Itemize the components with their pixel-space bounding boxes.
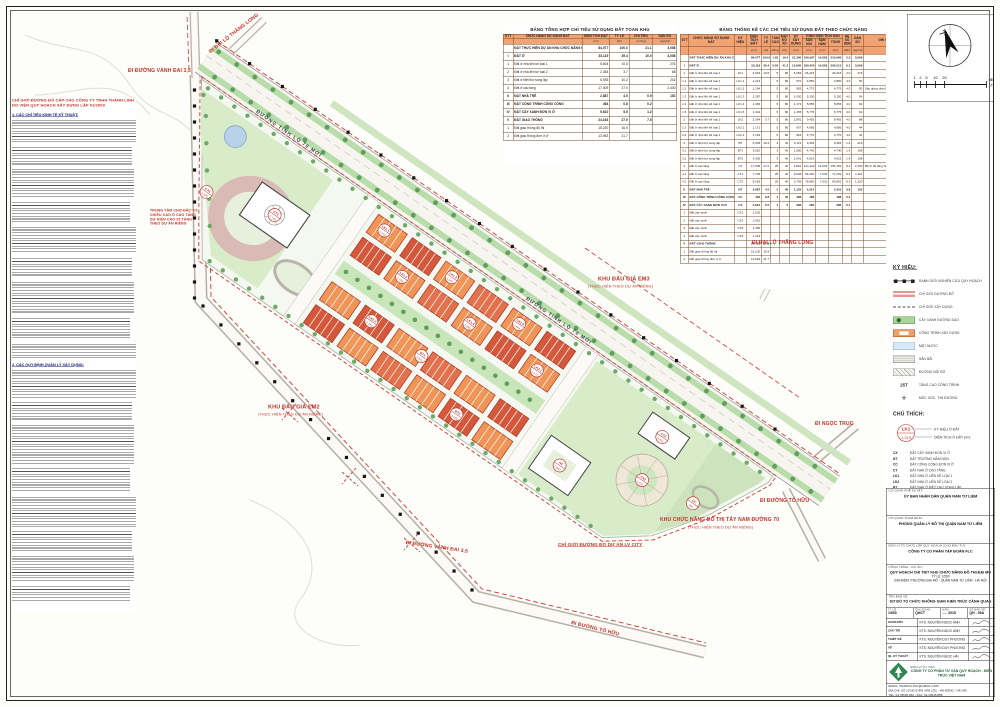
signature-scribble: [969, 653, 995, 660]
stats-row: 3.1Đất ở biệt thự song lậpBT13,5103451,5…: [680, 147, 907, 155]
svg-text:50M: 50M: [989, 77, 993, 82]
meta-cell: SỐ BẢN VẼQH - 05A: [968, 608, 995, 618]
lot-circle-key: LK1 1,213 KÝ HIỆU Ô ĐẤT DIỆN TÍCH Ô ĐẤT …: [893, 420, 993, 446]
red-line-icon: [893, 290, 915, 298]
investor-caption: ĐƠN VỊ TỔ CHỨC LẬP QUY HOẠCH (CHỦ ĐẦU TƯ…: [889, 545, 993, 548]
signature-row: GIÁM ĐỐCKTS. NGUYỄN NGỌC ANH: [887, 619, 995, 628]
legend-item: ĐƯỜNG NỘI BỘ: [893, 366, 993, 379]
summary-row: ĐẤT THỰC HIỆN DỰ ÁN KHU CHỨC NĂNG ĐÔ THỊ…: [503, 44, 677, 52]
legend-title: KÝ HIỆU:: [893, 265, 993, 271]
stats-row: IĐẤT Ở33,11939.43-2541.213,650186,45014,…: [680, 62, 907, 70]
scale-bar: 125102050M1/500: [913, 75, 992, 88]
stats-row: 1.1Đất ở nhà liền kề loại 1LK1.11,213580…: [680, 77, 907, 85]
right-info-column: 125102050M1/500 KÝ HIỆU: RANH GIỚI NGHIÊ…: [886, 12, 995, 698]
svg-text:DIỆN TÍCH Ô ĐẤT (m²): DIỆN TÍCH Ô ĐẤT (m²): [934, 435, 970, 440]
stats-row: IIIĐẤT CÔNG TRÌNH CÔNG CỘNGCC4640.814018…: [680, 194, 907, 202]
legend-label: CÂY XANH ĐƯỜNG DẠO: [919, 318, 959, 322]
svg-text:5: 5: [925, 75, 928, 80]
legend-list: RANH GIỚI NGHIÊN CỨU QUY HOẠCHCHỈ GIỚI Đ…: [893, 275, 993, 405]
meta-cell: GIAI ĐOẠNQHCT: [914, 608, 941, 618]
red-line-note-2: DO VIỆN QUY HOẠCH XÂY DỰNG LẬP 01/2009: [12, 103, 136, 108]
legend-item: 25TTẦNG CAO CÔNG TRÌNH: [893, 379, 993, 392]
label-market-note: TRUNG TÂM CHỢ ĐẦU TƯCHIỀU CAO Ô CAO TẦNG…: [150, 209, 198, 227]
project-caption: CÔNG TRÌNH - DỰ ÁN:: [889, 566, 993, 569]
stats-row: 3Đất ở biệt thự song lậpBT6,93510.23453,…: [680, 139, 907, 147]
label-em2-sub: (THỰC HIỆN THEO DỰ ÁN RIÊNG): [258, 412, 323, 417]
summary-row: 2Đất giao thông đơn vị ở13,96321.7: [503, 132, 677, 140]
svg-text:1,213: 1,213: [901, 435, 912, 440]
consultant-name: CÔNG TY CỔ PHẦN TƯ VẤN QUY HOẠCH - KIẾN …: [911, 669, 993, 678]
stats-row: 1Đất cây xanhCX11,525: [680, 209, 907, 217]
legend-label: ĐƯỜNG NỘI BỘ: [919, 370, 945, 374]
annotation-key-title: CHÚ THÍCH:: [893, 412, 993, 418]
legend-label: CHỈ GIỚI ĐƯỜNG ĐỎ: [919, 292, 954, 296]
legend-label: MỐC GIỚI, TIM ĐƯỜNG: [919, 396, 958, 400]
water-icon: [893, 342, 915, 350]
signature-scribble: [969, 628, 995, 635]
stats-row: 1.3Đất ở nhà liền kề loại 1LK1.31,287580…: [680, 93, 907, 101]
project-name: QUY HOẠCH CHI TIẾT KHU CHỨC NĂNG ĐÔ THỊ …: [889, 570, 993, 575]
land-use-codes: CXĐẤT CÂY XANH ĐƠN VỊ ỞNTĐẤT TRƯỜNG MẦM …: [893, 451, 993, 491]
stats-row: 4Đất ở cao tầngCT17,00927.025406,804141,…: [680, 163, 907, 171]
drawing-meta-row: TỶ LỆ1/500GIAI ĐOẠNQHCTNĂM..... 2015SỐ B…: [886, 608, 995, 619]
summary-row: 1Đất ở nhà liền kề loại 16,60410.5276: [503, 60, 677, 68]
stats-row: 4.2Đất ở cao tầngCT29,26325403,70676,860…: [680, 178, 907, 186]
label-ngoc-truc: ĐI NGỌC TRỤC: [815, 421, 853, 427]
signature-scribble: [969, 645, 995, 652]
survey-marker-icon: ✛: [893, 394, 915, 402]
label-tay-nam: KHU CHỨC NĂNG ĐÔ THỊ TÂY NAM ĐƯỜNG 70: [660, 517, 779, 523]
notes-microtext: [12, 370, 136, 603]
stats-row: 1Đất ở nhà liền kề loại 1LK16,60410.5580…: [680, 70, 907, 78]
yard-icon: [893, 355, 915, 363]
summary-row: IIĐẤT NHÀ TRẺ2,8874.50.9152: [503, 92, 677, 100]
legend-item: CHỈ GIỚI ĐƯỜNG ĐỎ: [893, 288, 993, 301]
stats-row: 2Đất ở nhà liền kề loại 2LK22,3643.75801…: [680, 116, 907, 124]
summary-row: IĐẤT Ở33,11939.410.03,008: [503, 52, 677, 60]
path-icon: [893, 368, 915, 376]
summary-table-title: BẢNG TỔNG HỢP CHỈ TIÊU SỬ DỤNG ĐẤT TOÀN …: [503, 27, 677, 32]
notes-heading-1: 1. CÁC CHỈ TIÊU KINH TẾ KỸ THUẬT:: [12, 112, 136, 117]
summary-row: IVĐẤT CÂY XANH ĐƠN VỊ Ở5,6105.51.2: [503, 108, 677, 116]
appraise-agency: PHÒNG QUẢN LÝ ĐÔ THỊ QUẬN NAM TỪ LIÊM: [889, 522, 993, 527]
appraise-caption: CƠ QUAN THẨM ĐỊNH:: [889, 517, 993, 520]
drawing-name: SƠ ĐỒ TỔ CHỨC KHÔNG GIAN KIẾN TRÚC CẢNH …: [889, 599, 993, 604]
summary-table: STTCHỨC NĂNG SỬ DỤNG ĐẤTDIỆN TÍCH ĐẤTTỶ …: [503, 34, 677, 141]
stats-row: 1Đất giao thông đô thị15,22016.9: [680, 248, 907, 256]
stats-row: IVĐẤT CÂY XANH ĐƠN VỊ ỞCX5,6105.51528028…: [680, 201, 907, 209]
legend-label: SÂN BÃI: [919, 357, 933, 361]
building-icon: [893, 329, 915, 337]
label-em3: KHU ĐẤU GIÁ EM3: [598, 276, 650, 282]
north-arrow-icon: [937, 27, 959, 59]
signature-rows: GIÁM ĐỐCKTS. NGUYỄN NGỌC ANHCHỦ TRÌKTS. …: [886, 618, 995, 661]
summary-table-panel: BẢNG TỔNG HỢP CHỈ TIÊU SỬ DỤNG ĐẤT TOÀN …: [503, 25, 677, 165]
stats-table-title: BẢNG THỐNG KÊ CÁC CHỈ TIÊU SỬ DỤNG ĐẤT T…: [680, 27, 907, 32]
label-tay-nam-sub: (THỰC HIỆN THEO DỰ ÁN RIÊNG): [688, 525, 753, 530]
label-thang-long-e: ĐI ĐẠI LỘ THĂNG LONG: [752, 240, 813, 246]
contact-box: EMAIL: VNARCH.JSC@GMAIL.COMĐỊA CHỈ: SỐ 1…: [886, 683, 995, 697]
legend-item: ✛MỐC GIỚI, TIM ĐƯỜNG: [893, 392, 993, 405]
legend-item: CÂY XANH ĐƯỜNG DẠO: [893, 314, 993, 327]
stats-row: 1.4Đất ở nhà liền kề loại 1LK1.41,466580…: [680, 101, 907, 109]
approve-caption: CƠ QUAN PHÊ DUYỆT:: [889, 490, 993, 493]
signature-row: VẼKTS. NGUYỄN DUY PHƯƠNG: [887, 644, 995, 653]
greenery-icon: [893, 316, 915, 324]
road-connectors: [282, 404, 420, 552]
svg-text:LK1: LK1: [902, 427, 911, 432]
consultant-logo-icon: [889, 662, 909, 682]
label-lv-city: CHỈ GIỚI ĐƯỜNG ĐỎ DỰ ÁN LV CITY: [558, 542, 642, 547]
svg-text:1/500: 1/500: [989, 84, 993, 88]
stats-row: 3Đất cây xanhCX31,356: [680, 225, 907, 233]
legend-item: SÂN BÃI: [893, 353, 993, 366]
legend-item: RANH GIỚI NGHIÊN CỨU QUY HOẠCH: [893, 275, 993, 288]
label-em3-sub: (THỰC HIỆN THEO DỰ ÁN RIÊNG): [588, 284, 653, 289]
stats-row: 4.1Đất ở cao tầngCT17,74625403,09864,260…: [680, 170, 907, 178]
approve-agency: ỦY BAN NHÂN DÂN QUẬN NAM TỪ LIÊM: [889, 494, 993, 499]
stats-table: STTCHỨC NĂNG SỬ DỤNG ĐẤTKÝ HIỆUDIỆN TÍCH…: [680, 34, 907, 264]
stats-row: 2.1Đất ở nhà liền kề loại 2LK2.11,171580…: [680, 124, 907, 132]
legend-item: MẶT NƯỚC: [893, 340, 993, 353]
svg-text:20: 20: [942, 75, 947, 80]
signature-scribble: [969, 619, 995, 626]
summary-row: VĐẤT GIAO THÔNG24,16327.97.5: [503, 116, 677, 124]
meta-cell: TỶ LỆ1/500: [887, 608, 914, 618]
stats-row: 3.2Đất ở biệt thự song lậpBT23,4253451,5…: [680, 155, 907, 163]
summary-row: 2Đất ở nhà liền kề loại 22,3643.788: [503, 68, 677, 76]
legend-label: RANH GIỚI NGHIÊN CỨU QUY HOẠCH: [919, 279, 982, 283]
signature-row: QL KỸ THUẬTKTS. NGUYỄN NGỌC HẢI: [887, 653, 995, 661]
svg-text:2: 2: [919, 75, 922, 80]
summary-row: 1Đất giao thông đô thị15,22016.9: [503, 124, 677, 132]
legend-label: CHỈ GIỚI XÂY DỰNG: [919, 305, 953, 309]
notes-microtext: [12, 120, 136, 358]
stats-row: 1.2Đất ở nhà liền kề loại 1LK1.21,194580…: [680, 85, 907, 93]
stats-row: IIĐẤT NHÀ TRẺNT2,8874.52401,1552,3102,31…: [680, 186, 907, 194]
notes-panel: CHỈ GIỚI ĐƯỜNG ĐỎ CẤP CHO CÔNG TY TNHH T…: [12, 98, 136, 612]
summary-row: 4Đất ở cao tầng17,00927.02,430: [503, 84, 677, 92]
signature-row: CHỦ TRÌKTS. NGUYỄN NGỌC ANH: [887, 627, 995, 636]
label-em2: KHU ĐẤU GIÁ EM2: [268, 404, 320, 410]
compass-box: 125102050M1/500: [907, 14, 994, 102]
meta-cell: NĂM..... 2015: [941, 608, 968, 618]
legend-label: MẶT NƯỚC: [919, 344, 938, 348]
drawing-sheet: CX11,525CT17,746LK1.11,213LK1.21,194LK1.…: [0, 0, 1000, 707]
signature-scribble: [969, 636, 995, 643]
stats-row: 2Đất cây xanhCX21,410: [680, 217, 907, 225]
title-block: CƠ QUAN PHÊ DUYỆT: ỦY BAN NHÂN DÂN QUẬN …: [886, 488, 995, 697]
legend-label: TẦNG CAO CÔNG TRÌNH: [919, 383, 959, 387]
summary-row: 3Đất ở biệt thự song lập6,93510.2216: [503, 76, 677, 84]
summary-row: IIIĐẤT CÔNG TRÌNH CÔNG CỘNG4640.80.2: [503, 100, 677, 108]
stats-table-panel: BẢNG THỐNG KÊ CÁC CHỈ TIÊU SỬ DỤNG ĐẤT T…: [680, 25, 907, 289]
stats-row: ĐẤT THỰC HIỆN DỰ ÁN KHU CHỨC NĂNG ĐÔ THỊ…: [680, 54, 907, 62]
stats-row: 2.2Đất ở nhà liền kề loại 2LK2.21,193580…: [680, 132, 907, 140]
investor-name: CÔNG TY CỔ PHẦN TẬP ĐOÀN FLC: [889, 549, 993, 554]
label-to-huu-e: ĐI ĐƯỜNG TỐ HỮU: [760, 498, 809, 504]
boundary-marker-icon: [893, 277, 915, 285]
north-arrow-and-scale: 125102050M1/500: [908, 15, 993, 101]
svg-text:1: 1: [913, 75, 916, 80]
stats-row: 1.5Đất ở nhà liền kề loại 1LK1.51,444580…: [680, 108, 907, 116]
legend-label: CÔNG TRÌNH XÂY DỰNG: [919, 331, 960, 335]
dashed-line-icon: [893, 307, 915, 308]
legend-item: CHỈ GIỚI XÂY DỰNG: [893, 301, 993, 314]
svg-text:KÝ HIỆU Ô ĐẤT: KÝ HIỆU Ô ĐẤT: [934, 427, 961, 432]
svg-text:10: 10: [933, 75, 938, 80]
signature-row: THIẾT KẾKTS. NGUYỄN DUY PHƯƠNG: [887, 636, 995, 645]
label-vanh-dai-nw: ĐI ĐƯỜNG VÀNH ĐAI 3,5: [128, 68, 191, 74]
notes-heading-2: 2. CÁC QUY ĐỊNH QUẢN LÝ XÂY DỰNG:: [12, 362, 136, 367]
height-icon: 25T: [893, 381, 915, 389]
legend-item: CÔNG TRÌNH XÂY DỰNG: [893, 327, 993, 340]
project-location: ĐỊA ĐIỂM: PHƯỜNG ĐẠI MỖ - QUẬN NAM TỪ LI…: [889, 579, 993, 583]
stats-row: 2Đất giao thông đơn vị ở13,96321.7: [680, 256, 907, 264]
